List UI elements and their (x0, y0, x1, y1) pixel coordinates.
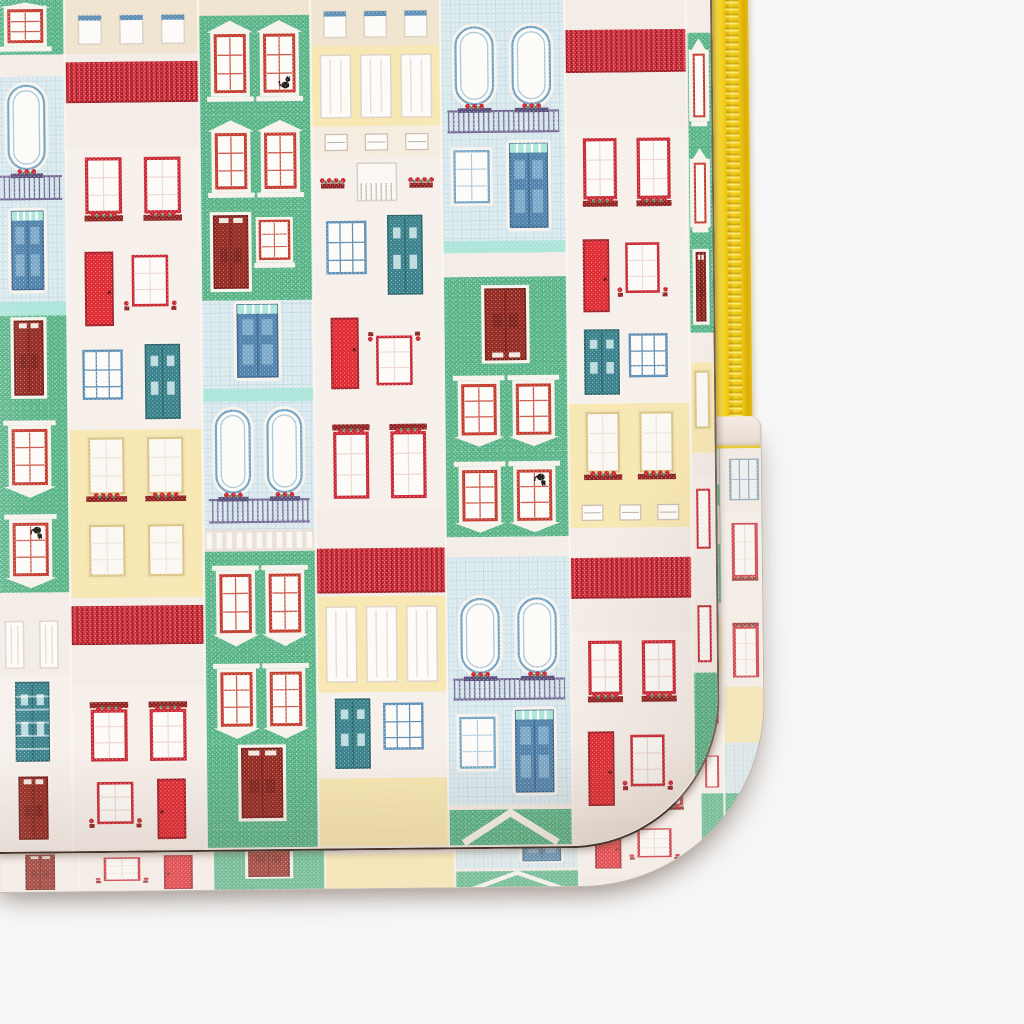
zipper-coil-edge (741, 0, 753, 428)
zipper-tape (710, 0, 753, 429)
product-photo (0, 0, 1024, 1024)
laptop-sleeve (0, 0, 1024, 1024)
gusset-top-fold-with-yellow-stitch (711, 416, 760, 449)
zipper-teeth (725, 0, 743, 428)
front-panel (0, 0, 721, 854)
fabric-print-front (0, 0, 719, 852)
